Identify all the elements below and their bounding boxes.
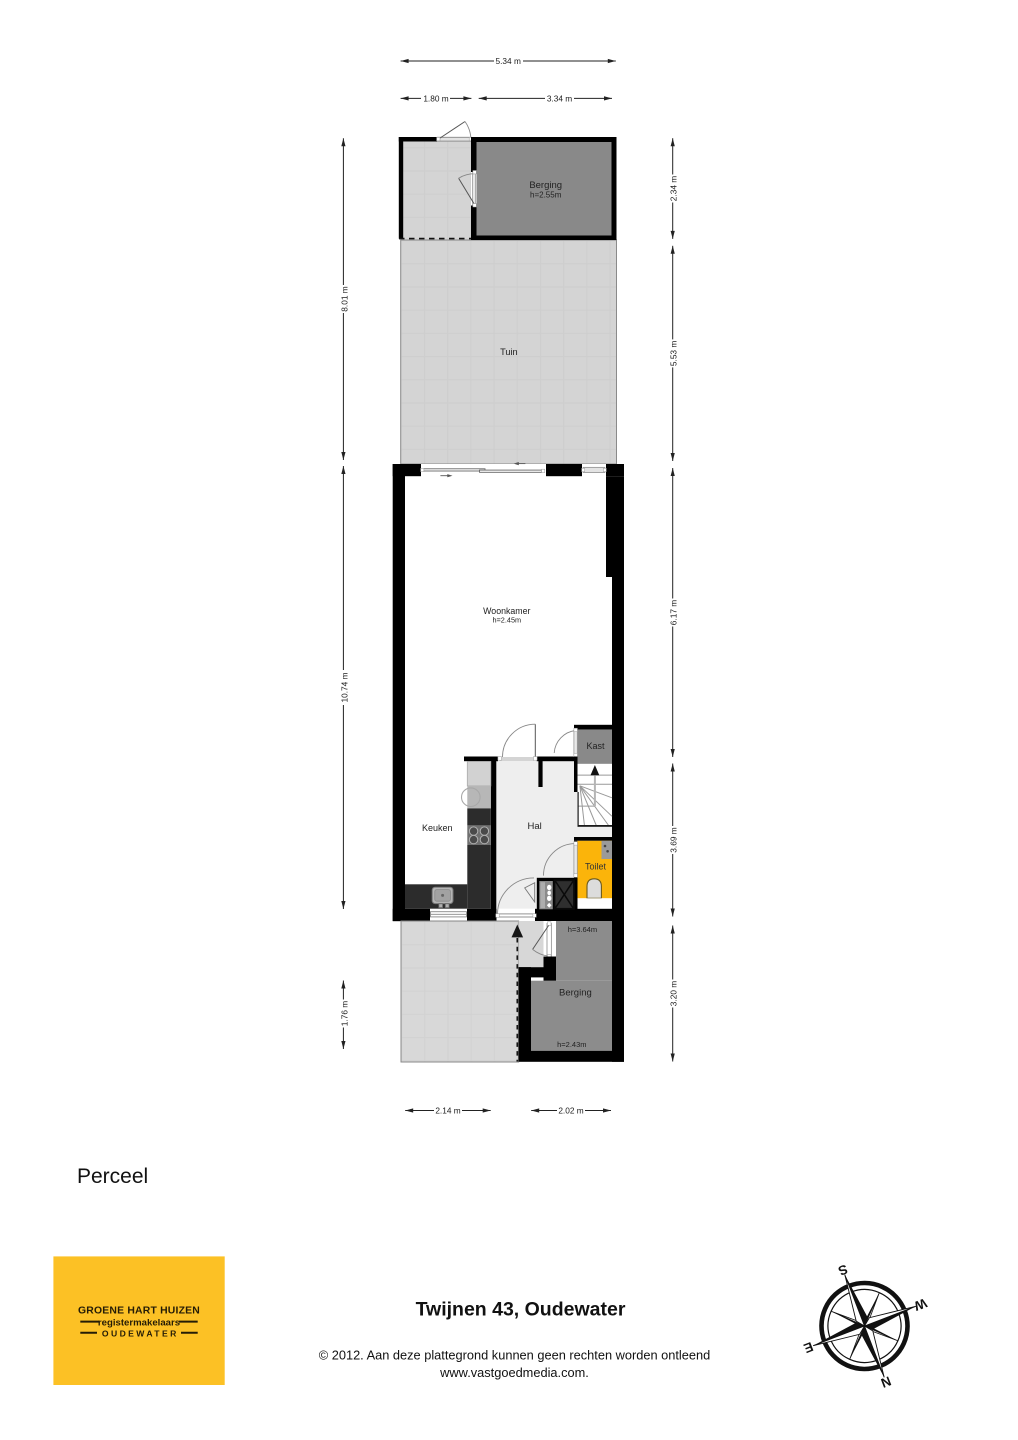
svg-text:N: N xyxy=(879,1373,893,1390)
svg-text:E: E xyxy=(802,1339,816,1356)
svg-text:GROENE HART HUIZEN: GROENE HART HUIZEN xyxy=(78,1306,200,1317)
svg-text:Twijnen 43, Oudewater: Twijnen 43, Oudewater xyxy=(416,1299,626,1321)
svg-text:© 2012. Aan deze plattegrond k: © 2012. Aan deze plattegrond kunnen geen… xyxy=(319,1348,711,1363)
svg-text:Tuin: Tuin xyxy=(500,347,518,357)
svg-text:h=2.55m: h=2.55m xyxy=(530,191,562,200)
svg-text:10.74 m: 10.74 m xyxy=(339,672,349,702)
svg-text:OUDEWATER: OUDEWATER xyxy=(102,1329,179,1339)
svg-text:2.34 m: 2.34 m xyxy=(669,176,679,201)
svg-text:1.76 m: 1.76 m xyxy=(339,1001,349,1026)
svg-text:Perceel: Perceel xyxy=(77,1165,148,1188)
svg-text:5.53 m: 5.53 m xyxy=(669,341,679,366)
svg-text:5.34 m: 5.34 m xyxy=(496,56,521,66)
svg-text:www.vastgoedmedia.com.: www.vastgoedmedia.com. xyxy=(439,1365,589,1380)
svg-text:h=2.43m: h=2.43m xyxy=(557,1040,586,1049)
svg-text:2.14 m: 2.14 m xyxy=(435,1106,460,1116)
svg-text:Berging: Berging xyxy=(559,987,592,998)
svg-text:Woonkamer: Woonkamer xyxy=(483,606,530,616)
svg-text:h=3.64m: h=3.64m xyxy=(568,925,597,934)
svg-text:6.17 m: 6.17 m xyxy=(669,600,679,625)
svg-text:3.34 m: 3.34 m xyxy=(547,93,572,103)
svg-text:3.69 m: 3.69 m xyxy=(669,827,679,852)
svg-text:Hal: Hal xyxy=(527,821,541,832)
svg-text:S: S xyxy=(836,1261,850,1278)
svg-text:W: W xyxy=(912,1295,930,1314)
svg-text:2.02 m: 2.02 m xyxy=(558,1106,583,1116)
svg-text:Berging: Berging xyxy=(529,180,562,191)
svg-text:h=2.45m: h=2.45m xyxy=(492,616,521,625)
svg-text:Keuken: Keuken xyxy=(422,823,453,833)
svg-text:8.01 m: 8.01 m xyxy=(339,286,349,311)
svg-text:3.20 m: 3.20 m xyxy=(669,981,679,1006)
svg-text:1.80 m: 1.80 m xyxy=(423,93,448,103)
svg-text:Toilet: Toilet xyxy=(585,862,607,872)
svg-text:registermakelaars: registermakelaars xyxy=(98,1317,180,1328)
svg-text:Kast: Kast xyxy=(586,741,605,751)
